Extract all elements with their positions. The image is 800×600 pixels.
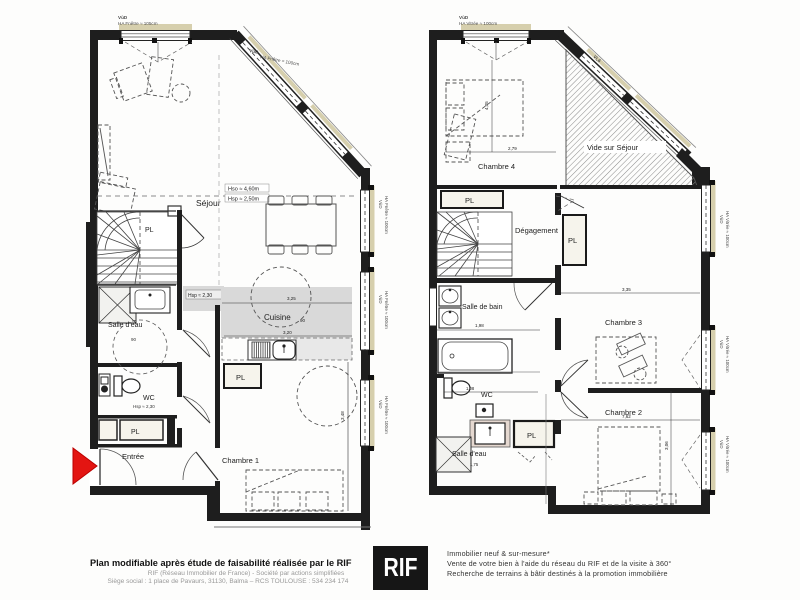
svg-text:VùD: VùD bbox=[719, 215, 724, 224]
svg-text:2,79: 2,79 bbox=[508, 146, 517, 151]
svg-text:Vide sur Séjour: Vide sur Séjour bbox=[587, 143, 639, 152]
svg-text:HA Vitrée ≈ 100cm: HA Vitrée ≈ 100cm bbox=[459, 21, 497, 26]
svg-text:Chambre 3: Chambre 3 bbox=[605, 318, 642, 327]
svg-text:PL: PL bbox=[236, 373, 245, 382]
svg-text:PL: PL bbox=[145, 227, 154, 234]
svg-text:Vente de votre bien à l'aide d: Vente de votre bien à l'aide du réseau d… bbox=[447, 559, 671, 568]
svg-text:Hsp ≈ 2,30: Hsp ≈ 2,30 bbox=[133, 404, 155, 409]
svg-text:90: 90 bbox=[131, 337, 137, 342]
svg-text:Dégagement: Dégagement bbox=[515, 226, 559, 235]
svg-text:HA Vitrée ≈ 100cm: HA Vitrée ≈ 100cm bbox=[725, 436, 730, 473]
svg-text:Séjour: Séjour bbox=[196, 198, 221, 208]
svg-text:Hsp ≈ 2,50m: Hsp ≈ 2,50m bbox=[228, 197, 260, 203]
svg-text:Hsp ≈ 2,30: Hsp ≈ 2,30 bbox=[188, 293, 212, 299]
svg-text:VùD: VùD bbox=[378, 200, 383, 209]
svg-text:Recherche de terrains à bâtir: Recherche de terrains à bâtir destinés à… bbox=[447, 569, 668, 578]
svg-text:Immobilier neuf & sur-mesure*: Immobilier neuf & sur-mesure* bbox=[447, 549, 550, 558]
svg-text:PL: PL bbox=[568, 236, 577, 245]
svg-text:RIF (Réseau Immobilier de Fran: RIF (Réseau Immobilier de France) - Soci… bbox=[148, 570, 345, 577]
svg-text:WC: WC bbox=[481, 392, 493, 399]
svg-text:PL: PL bbox=[527, 431, 536, 440]
svg-text:HA Fnêtre ≈ 105cm: HA Fnêtre ≈ 105cm bbox=[118, 21, 158, 26]
svg-text:Salle d'eau: Salle d'eau bbox=[108, 322, 143, 329]
svg-text:Plan modifiable après étude de: Plan modifiable après étude de faisabili… bbox=[90, 558, 352, 568]
svg-text:1,98: 1,98 bbox=[475, 323, 484, 328]
svg-text:WC: WC bbox=[143, 395, 155, 402]
svg-text:HA Vitrée ≈ 100cm: HA Vitrée ≈ 100cm bbox=[725, 211, 730, 248]
svg-text:Chambre 4: Chambre 4 bbox=[478, 162, 515, 171]
svg-text:7,62: 7,62 bbox=[622, 414, 631, 419]
svg-text:Chambre 1: Chambre 1 bbox=[222, 456, 259, 465]
svg-text:VùD: VùD bbox=[459, 15, 469, 20]
svg-text:HA Vitrée ≈ 100cm: HA Vitrée ≈ 100cm bbox=[725, 336, 730, 373]
svg-text:VùD: VùD bbox=[719, 340, 724, 349]
svg-text:HA Fnêtre ≈ 100cm: HA Fnêtre ≈ 100cm bbox=[384, 196, 389, 234]
svg-text:VùD: VùD bbox=[719, 440, 724, 449]
svg-text:PL: PL bbox=[465, 196, 474, 205]
svg-text:VùD: VùD bbox=[378, 400, 383, 409]
svg-text:3,20: 3,20 bbox=[283, 330, 292, 335]
svg-text:4,05: 4,05 bbox=[484, 101, 489, 110]
svg-text:90: 90 bbox=[300, 318, 306, 323]
svg-text:HA Fnêtre ≈ 100cm: HA Fnêtre ≈ 100cm bbox=[384, 291, 389, 329]
svg-text:PL: PL bbox=[131, 429, 140, 436]
svg-text:VùD: VùD bbox=[118, 15, 128, 20]
svg-text:3,06: 3,06 bbox=[664, 441, 669, 450]
svg-text:Siège social : 1 place de Pava: Siège social : 1 place de Pavaurs, 31130… bbox=[108, 578, 349, 585]
svg-text:3,35: 3,35 bbox=[622, 287, 631, 292]
svg-text:3,25: 3,25 bbox=[287, 296, 296, 301]
svg-text:Salle de bain: Salle de bain bbox=[462, 304, 503, 311]
svg-text:1,75: 1,75 bbox=[470, 462, 479, 467]
svg-text:Cuisine: Cuisine bbox=[264, 313, 291, 322]
svg-text:VùD: VùD bbox=[378, 295, 383, 304]
svg-text:1,08: 1,08 bbox=[466, 386, 475, 391]
svg-text:Hso ≈ 4,60m: Hso ≈ 4,60m bbox=[228, 187, 260, 193]
svg-text:HA Fnêtre ≈ 100cm: HA Fnêtre ≈ 100cm bbox=[384, 396, 389, 434]
svg-text:Salle d'eau: Salle d'eau bbox=[452, 451, 487, 458]
svg-text:3,48: 3,48 bbox=[340, 411, 345, 420]
svg-text:RIF: RIF bbox=[384, 552, 418, 582]
